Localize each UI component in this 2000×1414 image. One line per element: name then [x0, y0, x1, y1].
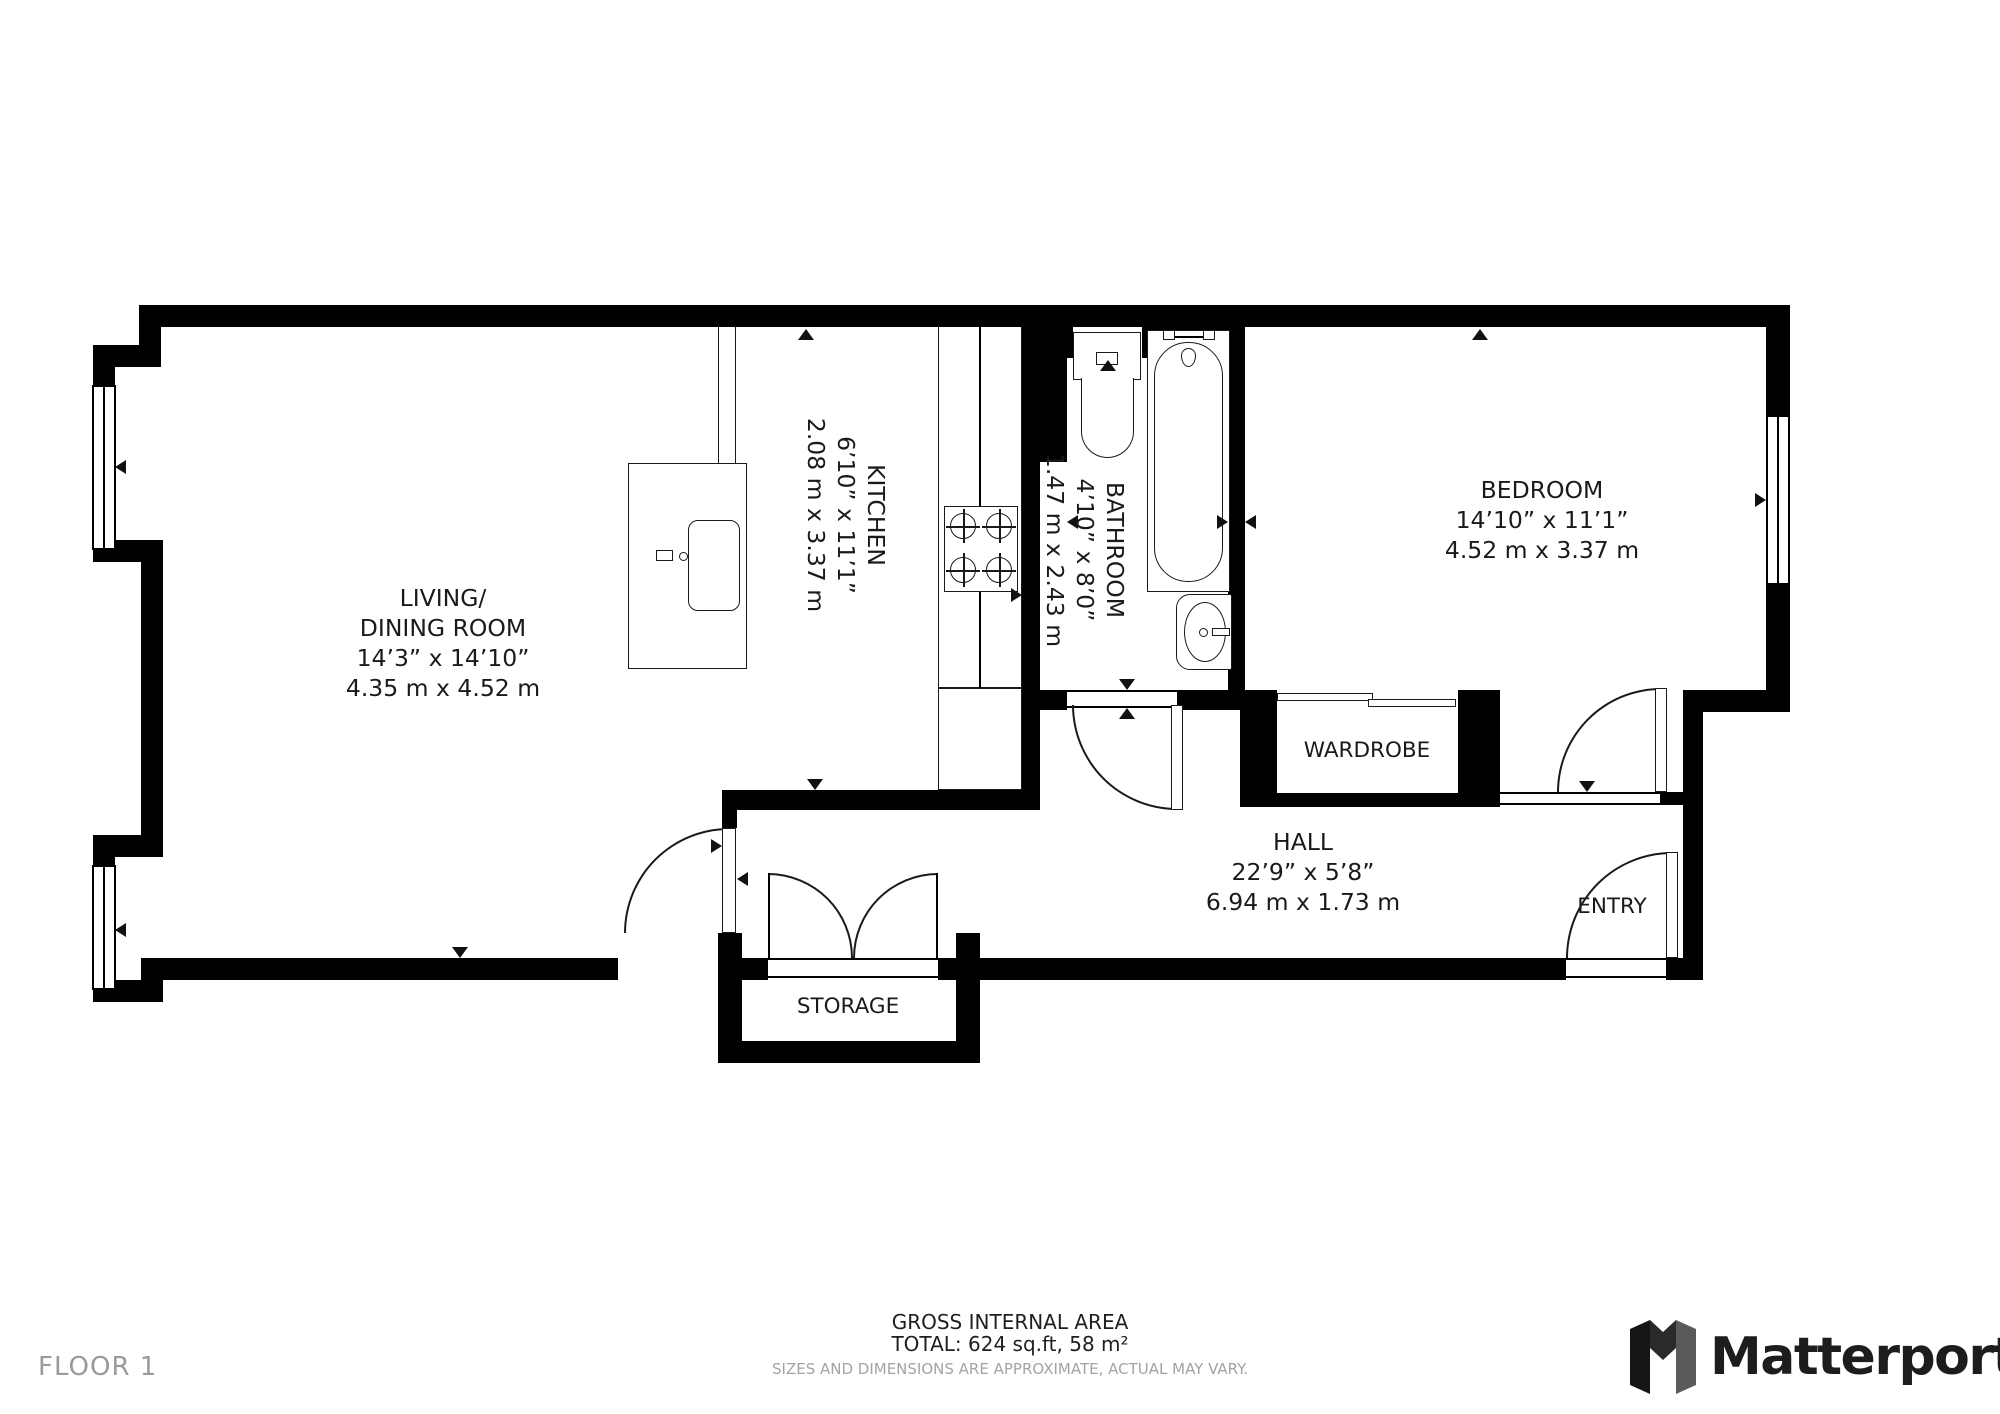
bedroom-door-arc: [1557, 688, 1661, 792]
floor-label: FLOOR 1: [38, 1352, 157, 1382]
storage-door-leaf: [768, 873, 770, 958]
threshold-line: [1067, 690, 1177, 692]
stove-burner-icon: [986, 557, 1012, 583]
bathroom-door-leaf: [1171, 705, 1183, 810]
room-name: STORAGE: [797, 992, 899, 1022]
disclaimer: SIZES AND DIMENSIONS ARE APPROXIMATE, AC…: [772, 1361, 1248, 1378]
dim-arrow-icon: [1119, 708, 1135, 719]
toilet-bowl: [1081, 378, 1134, 458]
room-name: ENTRY: [1577, 892, 1647, 922]
dim-arrow-icon: [115, 923, 126, 937]
room-name: KITCHEN: [861, 418, 891, 612]
threshold-line: [1566, 976, 1666, 978]
bathtub: [1154, 342, 1223, 582]
hall-label: HALL 22’9” x 5’8” 6.94 m x 1.73 m: [1206, 827, 1400, 917]
wall: [1458, 690, 1500, 807]
wall: [1037, 690, 1067, 710]
wall: [718, 1041, 980, 1063]
wall: [1683, 690, 1703, 980]
room-dim-ft: 4’10” x 8’0”: [1070, 453, 1100, 647]
sink-dot-icon: [1199, 628, 1208, 637]
sliding-door-leaf: [1277, 693, 1373, 701]
island-faucet-icon: [656, 550, 673, 561]
wall: [141, 540, 163, 857]
window-line: [103, 867, 105, 988]
room-dim-m: 2.08 m x 3.37 m: [801, 418, 831, 612]
wall: [93, 345, 161, 367]
wardrobe-label: WARDROBE: [1304, 736, 1430, 766]
wall: [737, 790, 1037, 810]
room-name: BATHROOM: [1100, 453, 1130, 647]
room-dim-ft: 22’9” x 5’8”: [1206, 857, 1400, 887]
wall: [1240, 793, 1460, 807]
stove: [944, 506, 1018, 592]
entry-door-leaf: [1666, 852, 1678, 958]
wall: [1666, 958, 1703, 980]
dim-arrow-icon: [1755, 493, 1766, 507]
threshold-line: [1566, 958, 1666, 960]
storage-door-arc-left: [768, 873, 853, 958]
room-dim-m: 1.47 m x 2.43 m: [1040, 453, 1070, 647]
kitchen-counter-lower: [938, 688, 1022, 790]
wall: [938, 958, 1566, 980]
bedroom-label: BEDROOM 14’10” x 11’1” 4.52 m x 3.37 m: [1445, 475, 1639, 565]
window-line: [1777, 417, 1779, 583]
wall: [141, 958, 618, 980]
dim-arrow-icon: [1011, 588, 1022, 602]
storage-door-leaf: [936, 873, 938, 958]
threshold-line: [768, 976, 938, 978]
living-room-label: LIVING/ DINING ROOM 14’3” x 14’10” 4.35 …: [346, 583, 540, 703]
wall: [93, 835, 163, 857]
wall: [1660, 792, 1683, 805]
stove-burner-icon: [950, 557, 976, 583]
wall: [1022, 327, 1040, 810]
wall: [139, 305, 1790, 327]
room-name: DINING ROOM: [346, 613, 540, 643]
window-line: [103, 387, 105, 548]
bathtub-handle-icon: [1203, 330, 1215, 340]
threshold-line: [1500, 792, 1661, 794]
bathtub-handle-icon: [1163, 330, 1175, 340]
storage-door-arc-right: [853, 873, 938, 958]
room-name: BEDROOM: [1445, 475, 1639, 505]
stove-burner-icon: [986, 513, 1012, 539]
area-total: TOTAL: 624 sq.ft, 58 m²: [772, 1333, 1248, 1355]
room-name: HALL: [1206, 827, 1400, 857]
sliding-door-leaf: [1368, 699, 1456, 707]
dim-arrow-icon: [711, 839, 722, 853]
threshold-line: [1500, 803, 1661, 805]
room-dim-m: 4.52 m x 3.37 m: [1445, 535, 1639, 565]
dim-arrow-icon: [1217, 515, 1228, 529]
room-name: WARDROBE: [1304, 736, 1430, 766]
room-dim-m: 6.94 m x 1.73 m: [1206, 887, 1400, 917]
matterport-logo-icon: [1630, 1320, 1696, 1394]
island-sink: [688, 520, 740, 611]
bathroom-label: BATHROOM 4’10” x 8’0” 1.47 m x 2.43 m: [1040, 453, 1130, 647]
room-dim-m: 4.35 m x 4.52 m: [346, 673, 540, 703]
room-name: LIVING/: [346, 583, 540, 613]
sink-tap-icon: [1212, 628, 1230, 636]
room-dim-ft: 14’3” x 14’10”: [346, 643, 540, 673]
matterport-logo: Matterport: [1630, 1320, 2000, 1394]
room-dim-ft: 14’10” x 11’1”: [1445, 505, 1639, 535]
island-faucet-dot-icon: [679, 552, 688, 561]
dim-arrow-icon: [798, 329, 814, 340]
dim-arrow-icon: [807, 779, 823, 790]
dim-arrow-icon: [1100, 360, 1116, 371]
entry-label: ENTRY: [1577, 892, 1647, 922]
dim-arrow-icon: [115, 460, 126, 474]
threshold-line: [768, 958, 938, 960]
area-summary: GROSS INTERNAL AREA TOTAL: 624 sq.ft, 58…: [772, 1311, 1248, 1378]
dim-arrow-icon: [1119, 679, 1135, 690]
kitchen-label: KITCHEN 6’10” x 11’1” 2.08 m x 3.37 m: [801, 418, 891, 612]
room-dim-ft: 6’10” x 11’1”: [831, 418, 861, 612]
bathroom-door-arc: [1072, 705, 1177, 810]
dim-arrow-icon: [1472, 329, 1488, 340]
living-door-leaf: [722, 828, 736, 933]
wall: [1040, 327, 1067, 462]
floor-plan-page: LIVING/ DINING ROOM 14’3” x 14’10” 4.35 …: [0, 0, 2000, 1414]
dim-arrow-icon: [1245, 515, 1256, 529]
bedroom-door-leaf: [1655, 688, 1667, 792]
wall: [1240, 690, 1277, 807]
matterport-wordmark: Matterport: [1710, 1327, 2000, 1387]
wall: [722, 790, 737, 828]
storage-label: STORAGE: [797, 992, 899, 1022]
dim-arrow-icon: [1579, 781, 1595, 792]
dim-arrow-icon: [737, 872, 748, 886]
stove-burner-icon: [950, 513, 976, 539]
area-title: GROSS INTERNAL AREA: [772, 1311, 1248, 1333]
dim-arrow-icon: [452, 947, 468, 958]
